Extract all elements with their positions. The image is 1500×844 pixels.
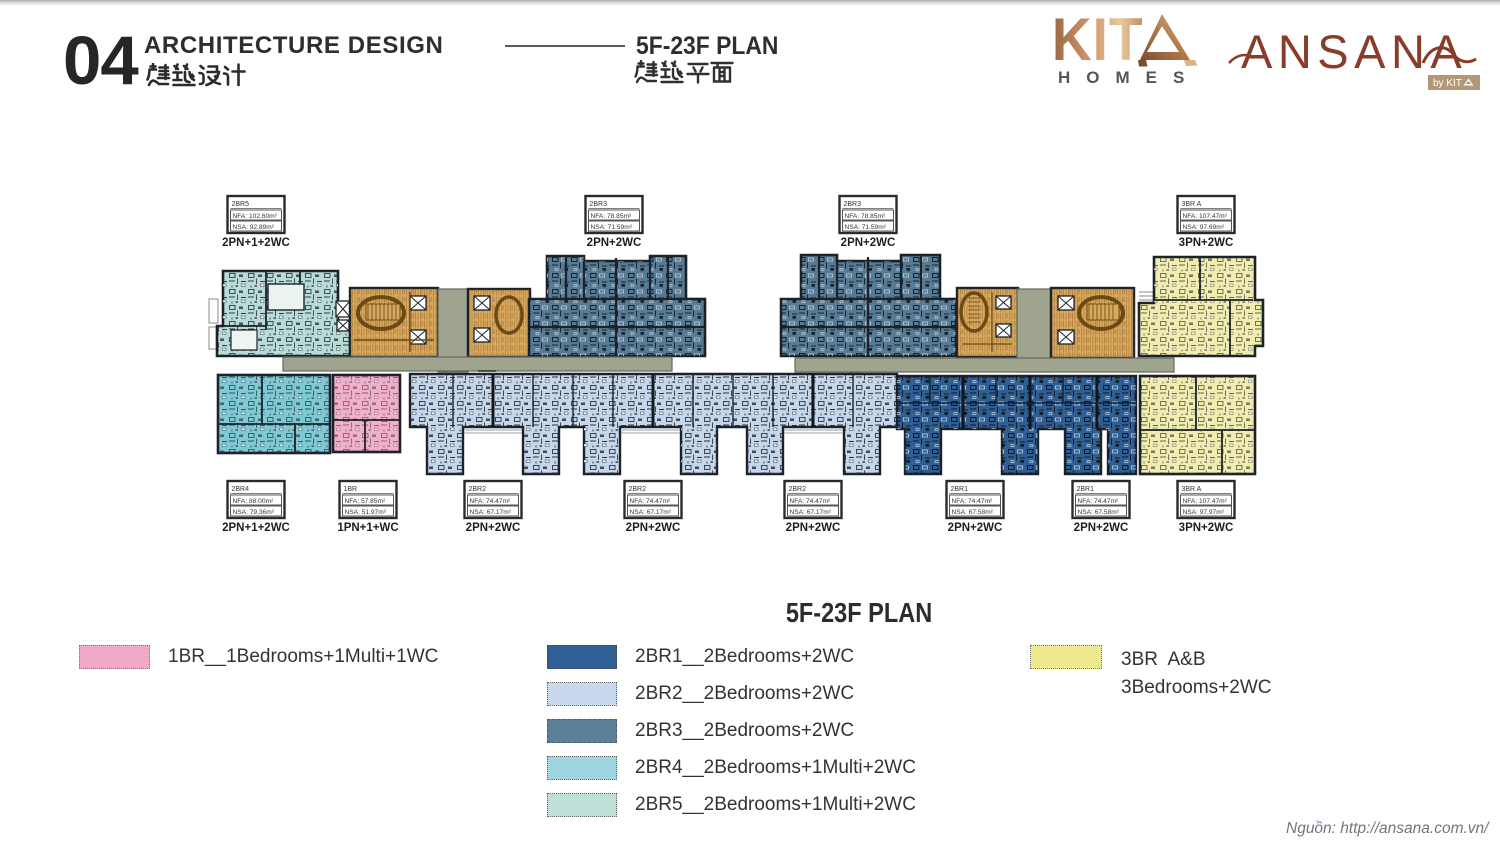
svg-text:NSA: 97.69m²: NSA: 97.69m² bbox=[1183, 224, 1225, 231]
svg-text:NFA: 74.47m²: NFA: 74.47m² bbox=[952, 498, 993, 505]
svg-text:2PN+2WC: 2PN+2WC bbox=[466, 522, 521, 534]
svg-text:NSA: 67.58m²: NSA: 67.58m² bbox=[1078, 509, 1120, 516]
svg-text:2PN+2WC: 2PN+2WC bbox=[841, 237, 896, 249]
svg-text:2PN+2WC: 2PN+2WC bbox=[626, 522, 681, 534]
svg-text:3BR A: 3BR A bbox=[1182, 486, 1202, 493]
svg-text:NFA: 78.85m²: NFA: 78.85m² bbox=[845, 213, 886, 220]
svg-text:2BR2: 2BR2 bbox=[789, 486, 807, 493]
svg-text:1BR: 1BR bbox=[344, 486, 358, 493]
svg-text:NSA: 67.17m²: NSA: 67.17m² bbox=[790, 509, 832, 516]
svg-text:NSA: 67.17m²: NSA: 67.17m² bbox=[630, 509, 672, 516]
svg-text:2BR3: 2BR3 bbox=[590, 201, 608, 208]
svg-text:2PN+1+2WC: 2PN+1+2WC bbox=[222, 237, 290, 249]
svg-text:2PN+2WC: 2PN+2WC bbox=[1074, 522, 1129, 534]
svg-text:2BR2: 2BR2 bbox=[629, 486, 647, 493]
svg-text:2BR3: 2BR3 bbox=[844, 201, 862, 208]
svg-text:2BR1: 2BR1 bbox=[1077, 486, 1095, 493]
svg-text:2PN+1+2WC: 2PN+1+2WC bbox=[222, 522, 290, 534]
svg-text:NFA: 74.47m²: NFA: 74.47m² bbox=[790, 498, 831, 505]
svg-text:2PN+2WC: 2PN+2WC bbox=[587, 237, 642, 249]
svg-text:NFA: 107.47m²: NFA: 107.47m² bbox=[1183, 213, 1228, 220]
svg-text:2BR5: 2BR5 bbox=[232, 201, 250, 208]
svg-text:2BR1: 2BR1 bbox=[951, 486, 969, 493]
svg-text:NFA: 74.47m²: NFA: 74.47m² bbox=[470, 498, 511, 505]
svg-text:NFA: 107.47m²: NFA: 107.47m² bbox=[1183, 498, 1228, 505]
svg-text:2BR4: 2BR4 bbox=[232, 486, 250, 493]
svg-text:NFA: 88.00m²: NFA: 88.00m² bbox=[233, 498, 274, 505]
svg-text:NSA: 79.36m²: NSA: 79.36m² bbox=[233, 509, 275, 516]
svg-text:3BR A: 3BR A bbox=[1182, 201, 1202, 208]
svg-text:NFA: 74.47m²: NFA: 74.47m² bbox=[630, 498, 671, 505]
svg-text:NSA: 71.59m²: NSA: 71.59m² bbox=[845, 224, 887, 231]
svg-text:NFA: 102.60m²: NFA: 102.60m² bbox=[233, 213, 278, 220]
svg-text:3PN+2WC: 3PN+2WC bbox=[1179, 237, 1234, 249]
svg-text:NSA: 71.59m²: NSA: 71.59m² bbox=[591, 224, 633, 231]
svg-text:3PN+2WC: 3PN+2WC bbox=[1179, 522, 1234, 534]
svg-text:2PN+2WC: 2PN+2WC bbox=[948, 522, 1003, 534]
svg-text:NSA: 51.97m²: NSA: 51.97m² bbox=[345, 509, 387, 516]
svg-text:NSA: 67.58m²: NSA: 67.58m² bbox=[952, 509, 994, 516]
svg-text:NSA: 67.17m²: NSA: 67.17m² bbox=[470, 509, 512, 516]
svg-text:NFA: 57.85m²: NFA: 57.85m² bbox=[345, 498, 386, 505]
svg-text:NSA: 97.97m²: NSA: 97.97m² bbox=[1183, 509, 1225, 516]
svg-text:1PN+1+WC: 1PN+1+WC bbox=[337, 522, 398, 534]
svg-text:NFA: 74.47m²: NFA: 74.47m² bbox=[1078, 498, 1119, 505]
svg-text:2PN+2WC: 2PN+2WC bbox=[786, 522, 841, 534]
svg-text:NSA: 92.89m²: NSA: 92.89m² bbox=[233, 224, 275, 231]
svg-text:NFA: 78.85m²: NFA: 78.85m² bbox=[591, 213, 632, 220]
svg-text:2BR2: 2BR2 bbox=[469, 486, 487, 493]
